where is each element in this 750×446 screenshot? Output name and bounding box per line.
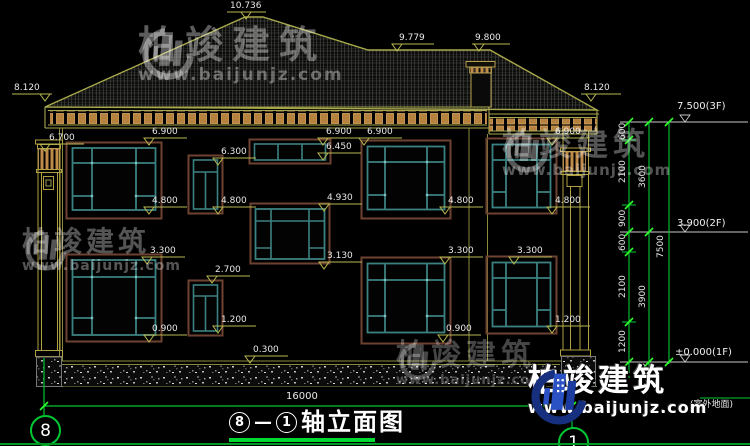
overall-width-dimension: 16000: [286, 392, 318, 402]
chain-seg-2100b: 2100: [619, 275, 628, 298]
level-label-w1f-center-bottom: 0.900: [446, 324, 472, 334]
level-label-small2f-top: 6.300: [221, 147, 247, 157]
level-label-wing-ridge: 9.779: [399, 33, 425, 43]
chain-seg-900: 900: [619, 210, 628, 227]
chain-total-3600: 3600: [639, 165, 648, 188]
window-1f-right: [487, 257, 557, 334]
chain-total-7500: 7500: [657, 235, 666, 258]
window-2f-right: [487, 139, 557, 214]
cad-elevation-screenshot: 柏竣建筑 www.baijunjz.com 柏竣建筑 www.baijunjz.…: [0, 0, 750, 446]
chain-total-3900: 3900: [639, 285, 648, 308]
chain-seg-600a: 600: [619, 123, 628, 140]
window-1f-center: [362, 258, 451, 344]
pilaster-right: [561, 131, 596, 387]
window-1f-left: [67, 255, 162, 342]
level-label-w1f-right-top: 3.300: [517, 246, 543, 256]
chain-seg-600b: 600: [619, 234, 628, 251]
title-text: 轴立面图: [301, 409, 405, 435]
level-label-w2f-right-top: 6.900: [555, 127, 581, 137]
level-label-stair-top: 4.930: [327, 193, 353, 203]
hipped-roof: [45, 17, 597, 110]
level-label-small1f-top: 2.700: [215, 265, 241, 275]
title-axis-end-circle: 1: [276, 412, 297, 433]
level-label-w2f-mid-top: 6.900: [326, 127, 352, 137]
chain-seg-2100a: 2100: [619, 160, 628, 183]
watermark-logo-colored: 柏竣建筑 www.baijunjz.com: [528, 366, 707, 416]
level-label-w2f-center-top: 6.900: [367, 127, 393, 137]
pilaster-left: [36, 140, 63, 387]
axis-number-8: 8: [40, 421, 51, 441]
title-dash: —: [254, 413, 272, 432]
ground-hatch: [63, 366, 562, 387]
window-1f-small: [189, 281, 223, 336]
window-2f-center: [362, 141, 451, 219]
floor-level-1f: ±0.000(1F): [675, 347, 732, 358]
level-label-w2f-center-bottom: 4.800: [448, 196, 474, 206]
title-axis-start-circle: 8: [229, 412, 250, 433]
level-label-eave-left: 8.120: [14, 83, 40, 93]
floor-level-3f: 7.500(3F): [677, 101, 726, 112]
level-label-transom-bottom: 6.450: [326, 142, 352, 152]
title-underline: [229, 438, 375, 442]
level-label-stair-bottom: 3.130: [327, 251, 353, 261]
eave-cornice: [45, 107, 599, 134]
level-label-capital: 6.700: [49, 133, 75, 143]
level-label-small1f-bottom: 1.200: [221, 315, 247, 325]
brand-logo-icon: [528, 366, 586, 432]
level-label-eave-right: 8.120: [584, 83, 610, 93]
bottom-rule: [0, 443, 750, 445]
floor-level-2f: 3.900(2F): [677, 218, 726, 229]
level-label-porch-step: 0.300: [253, 345, 279, 355]
level-label-w1f-center-top: 3.300: [448, 246, 474, 256]
level-label-w1f-right-bottom: 1.200: [555, 315, 581, 325]
window-stair: [251, 204, 330, 264]
axis-bubble-8: 8: [30, 415, 61, 446]
level-label-w2f-left-bottom: 4.800: [152, 196, 178, 206]
window-2f-transom: [250, 140, 331, 164]
level-label-w2f-left-top: 6.900: [152, 127, 178, 137]
level-label-w2f-small-bottom: 4.800: [221, 196, 247, 206]
chain-seg-1200: 1200: [619, 330, 628, 353]
level-label-ridge: 10.736: [230, 1, 262, 11]
level-label-wing-ridge-right: 9.800: [475, 33, 501, 43]
level-label-w1f-left-top: 3.300: [150, 246, 176, 256]
drawing-title: 8 — 1 轴立面图: [229, 409, 405, 435]
level-label-w2f-right-bottom: 4.800: [555, 196, 581, 206]
level-label-w1f-left-bottom: 0.900: [152, 324, 178, 334]
